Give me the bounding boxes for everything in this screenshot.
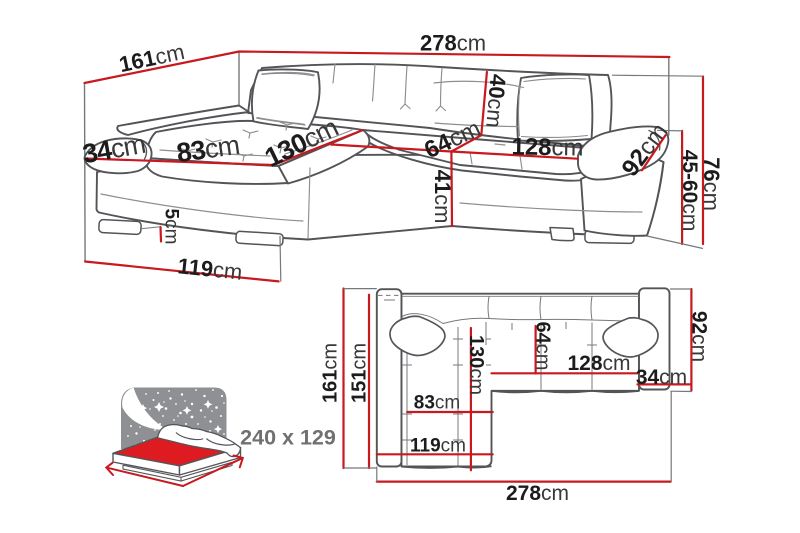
svg-text:161cm: 161cm [320, 343, 342, 403]
svg-text:128cm: 128cm [567, 352, 630, 375]
svg-text:64cm: 64cm [532, 322, 554, 371]
svg-text:151cm: 151cm [348, 343, 370, 403]
svg-text:119cm: 119cm [410, 436, 466, 457]
svg-text:278cm: 278cm [506, 482, 569, 505]
svg-text:40cm: 40cm [481, 73, 511, 129]
svg-text:128cm: 128cm [511, 133, 584, 161]
svg-text:130cm: 130cm [465, 335, 487, 395]
svg-text:83cm: 83cm [414, 393, 460, 414]
svg-text:278cm: 278cm [420, 31, 486, 56]
svg-text:240 x 129: 240 x 129 [240, 426, 336, 450]
svg-text:92cm: 92cm [688, 311, 711, 362]
svg-text:45-60cm: 45-60cm [678, 150, 701, 232]
svg-text:34cm: 34cm [636, 366, 687, 389]
svg-text:41cm: 41cm [430, 170, 455, 224]
svg-text:5cm: 5cm [161, 209, 182, 245]
svg-text:76cm: 76cm [699, 157, 724, 211]
